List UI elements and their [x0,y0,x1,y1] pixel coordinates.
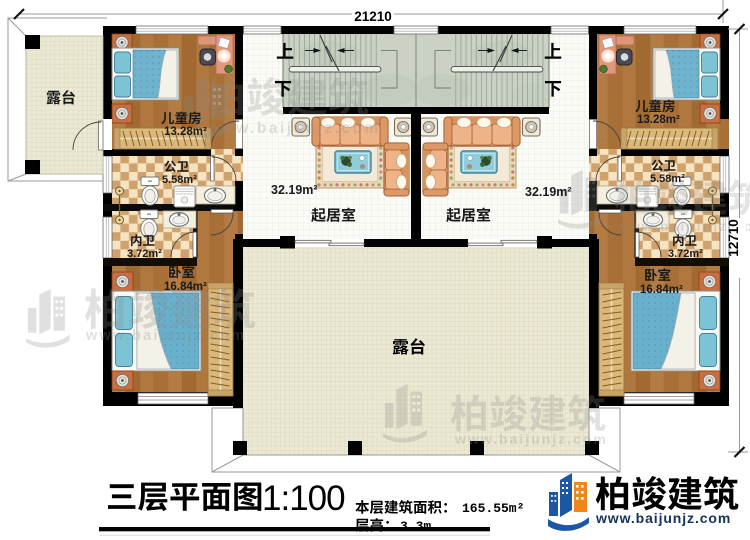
svg-text:32.19m²: 32.19m² [525,185,572,199]
svg-text:5.58m²: 5.58m² [162,174,197,186]
svg-text:32.19m²: 32.19m² [271,183,318,197]
svg-text:www.baijunjz.com: www.baijunjz.com [595,510,731,526]
svg-text:16.84m²: 16.84m² [164,281,207,293]
svg-text:21210: 21210 [354,9,392,24]
svg-text:165.55m²: 165.55m² [462,501,524,516]
svg-text:16.84m²: 16.84m² [640,284,683,296]
svg-text:13.28m²: 13.28m² [164,126,207,138]
svg-text:www.baijunjz.com: www.baijunjz.com [206,120,381,137]
svg-text:www.baijunjz.com: www.baijunjz.com [454,431,608,447]
svg-text:13.28m²: 13.28m² [637,114,680,126]
svg-text:www.baijunjz.com: www.baijunjz.com [85,328,246,344]
svg-text:1:100: 1:100 [262,479,345,518]
svg-text:12710: 12710 [726,219,741,257]
svg-text:5.58m²: 5.58m² [650,173,685,185]
svg-text:3.72m²: 3.72m² [127,248,162,260]
svg-text:3.3m: 3.3m [400,519,431,534]
svg-text:3.72m²: 3.72m² [668,248,703,260]
